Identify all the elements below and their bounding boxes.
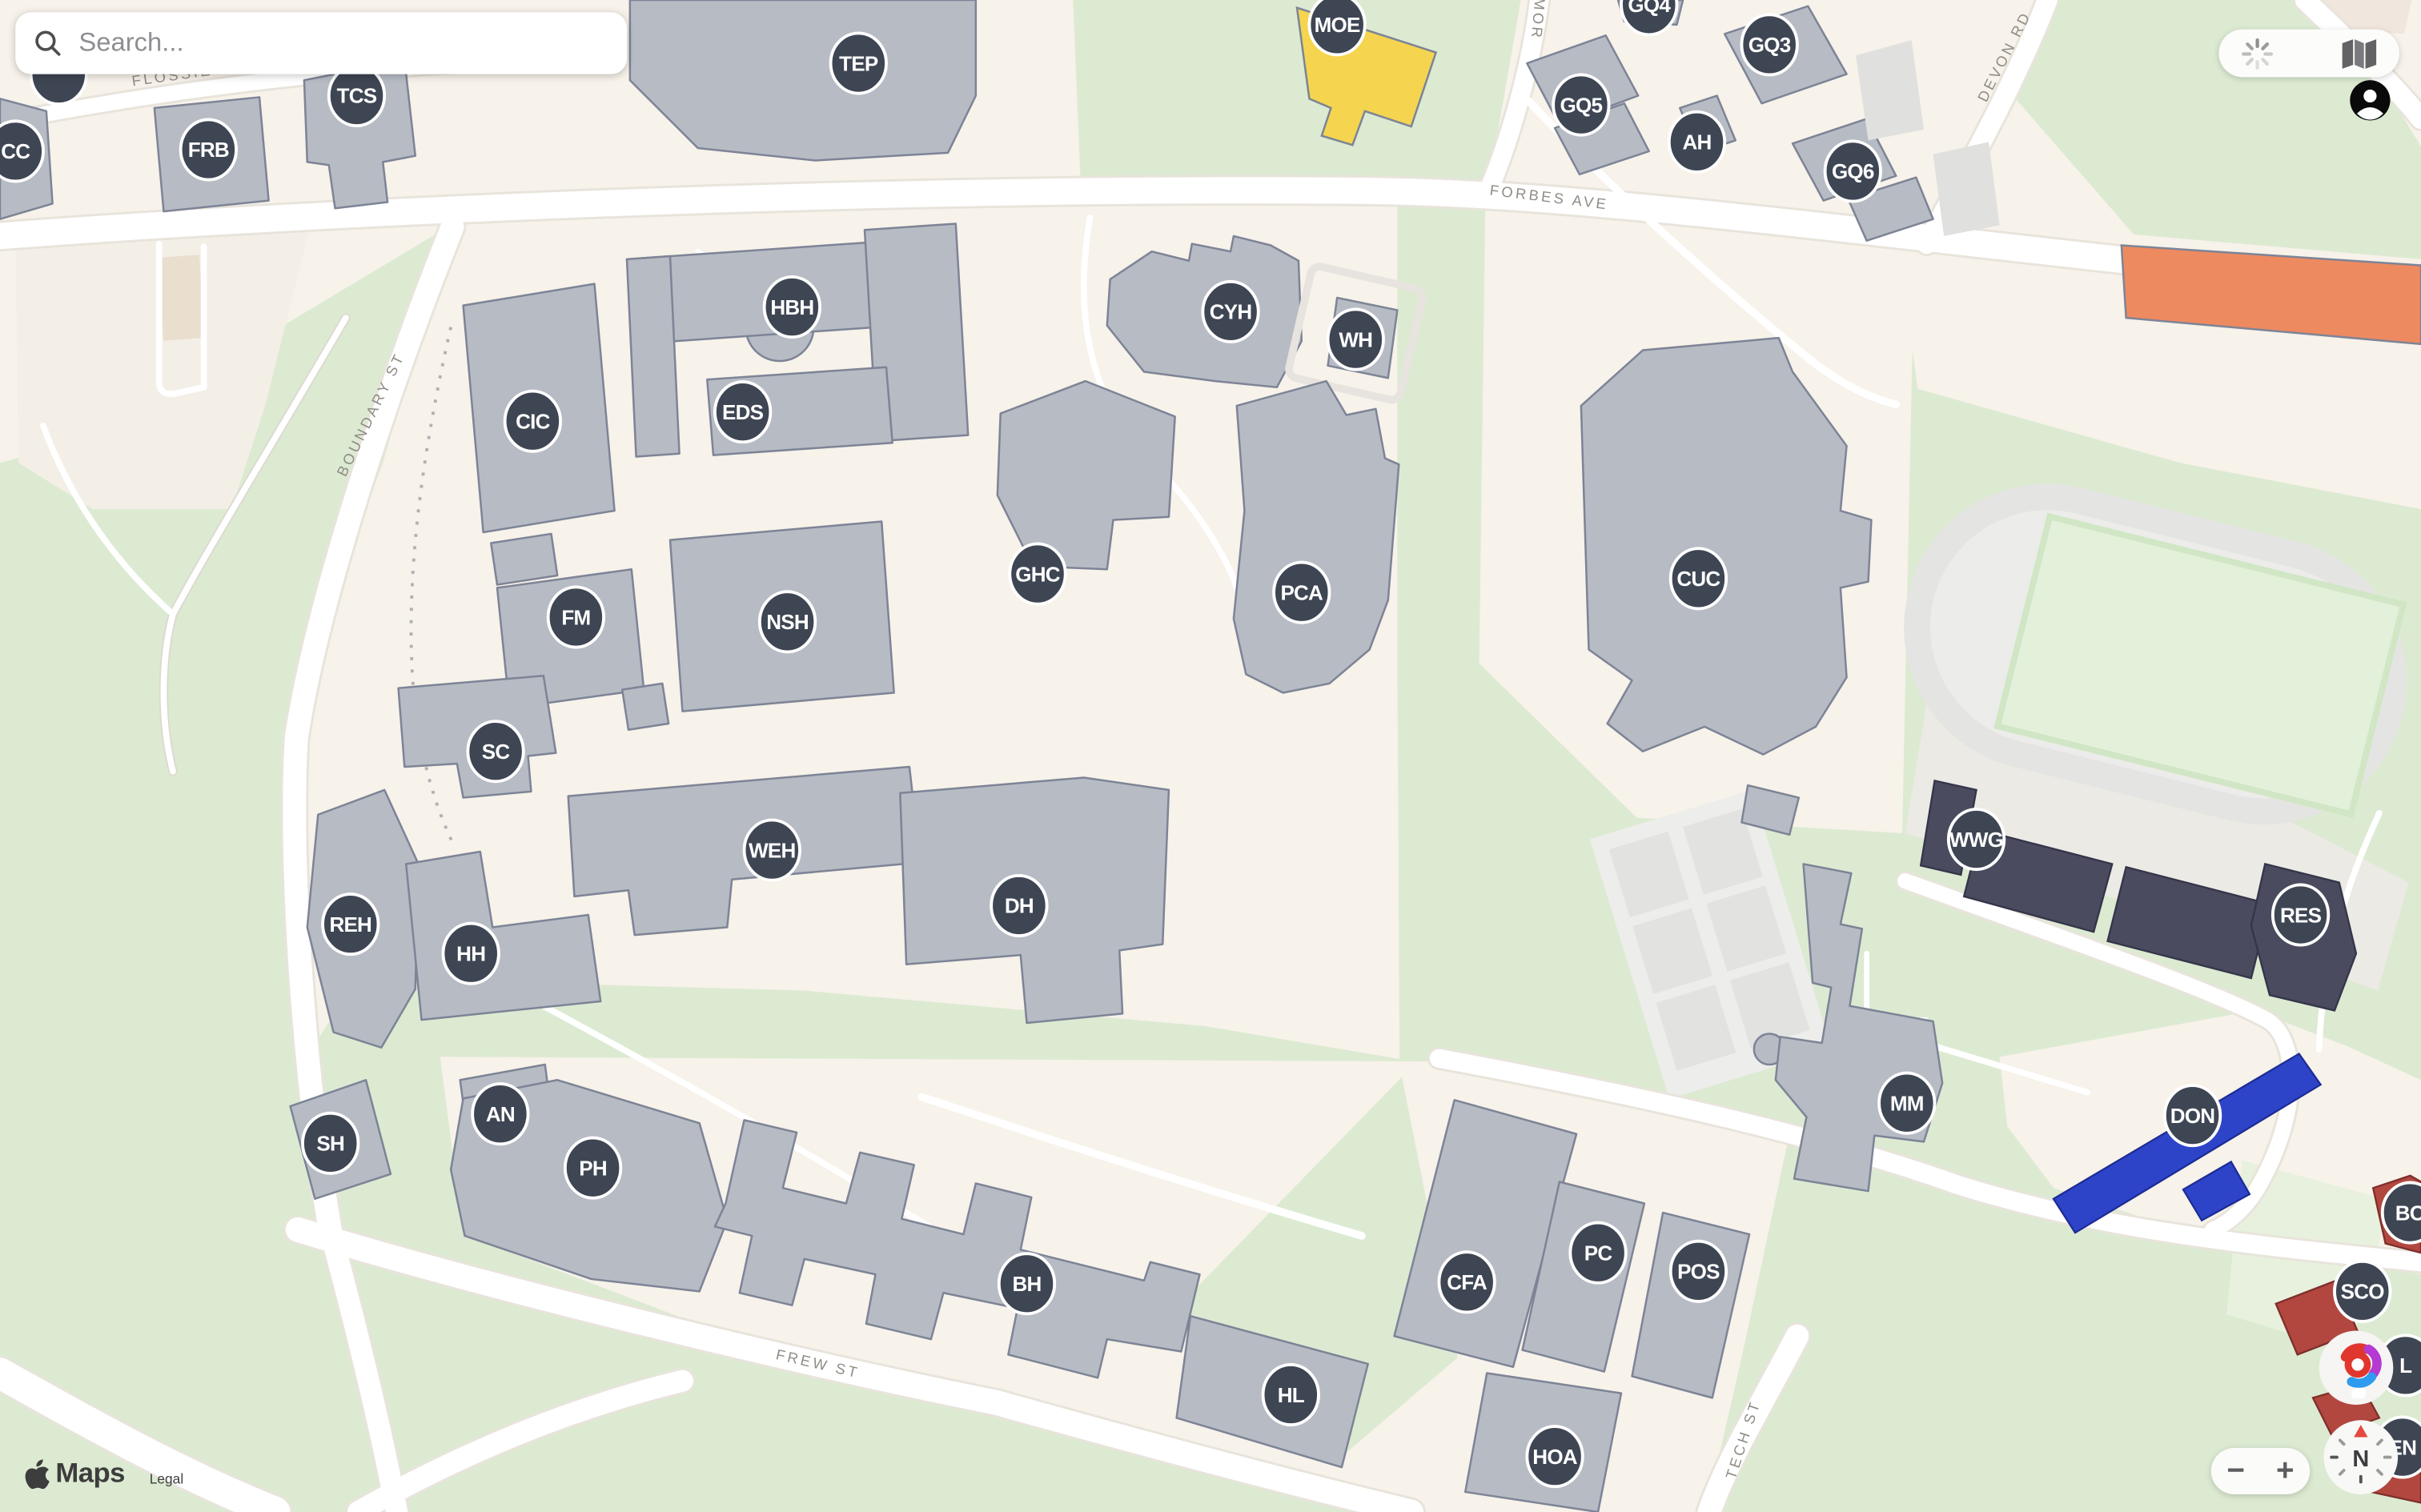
zoom-in-button[interactable]: + [2260, 1448, 2310, 1494]
location-pin-control[interactable] [2318, 1330, 2395, 1406]
zoom-controls[interactable]: − + [2211, 1448, 2310, 1494]
search-icon [34, 30, 62, 58]
map-attribution: Maps Legal [25, 1458, 183, 1490]
compass-control[interactable]: N [2323, 1418, 2399, 1495]
search-input[interactable] [76, 26, 608, 60]
loading-spinner-icon [2240, 36, 2274, 70]
map-mode-icon[interactable] [2341, 38, 2378, 69]
search-bar[interactable] [15, 12, 627, 74]
apple-maps-logo: Maps [25, 1458, 125, 1490]
map-canvas[interactable]: FLOSSIE WAYBOUNDARY STFORBES AVEMORDEVON… [0, 0, 2421, 1512]
compass-label: N [2352, 1446, 2369, 1472]
apple-icon [25, 1458, 51, 1490]
zoom-out-button[interactable]: − [2211, 1448, 2261, 1494]
legal-link[interactable]: Legal [150, 1471, 183, 1486]
top-right-controls[interactable] [2218, 30, 2399, 78]
account-avatar-button[interactable] [2350, 80, 2390, 120]
person-icon [2350, 80, 2390, 120]
brand-name: Maps [55, 1458, 124, 1490]
